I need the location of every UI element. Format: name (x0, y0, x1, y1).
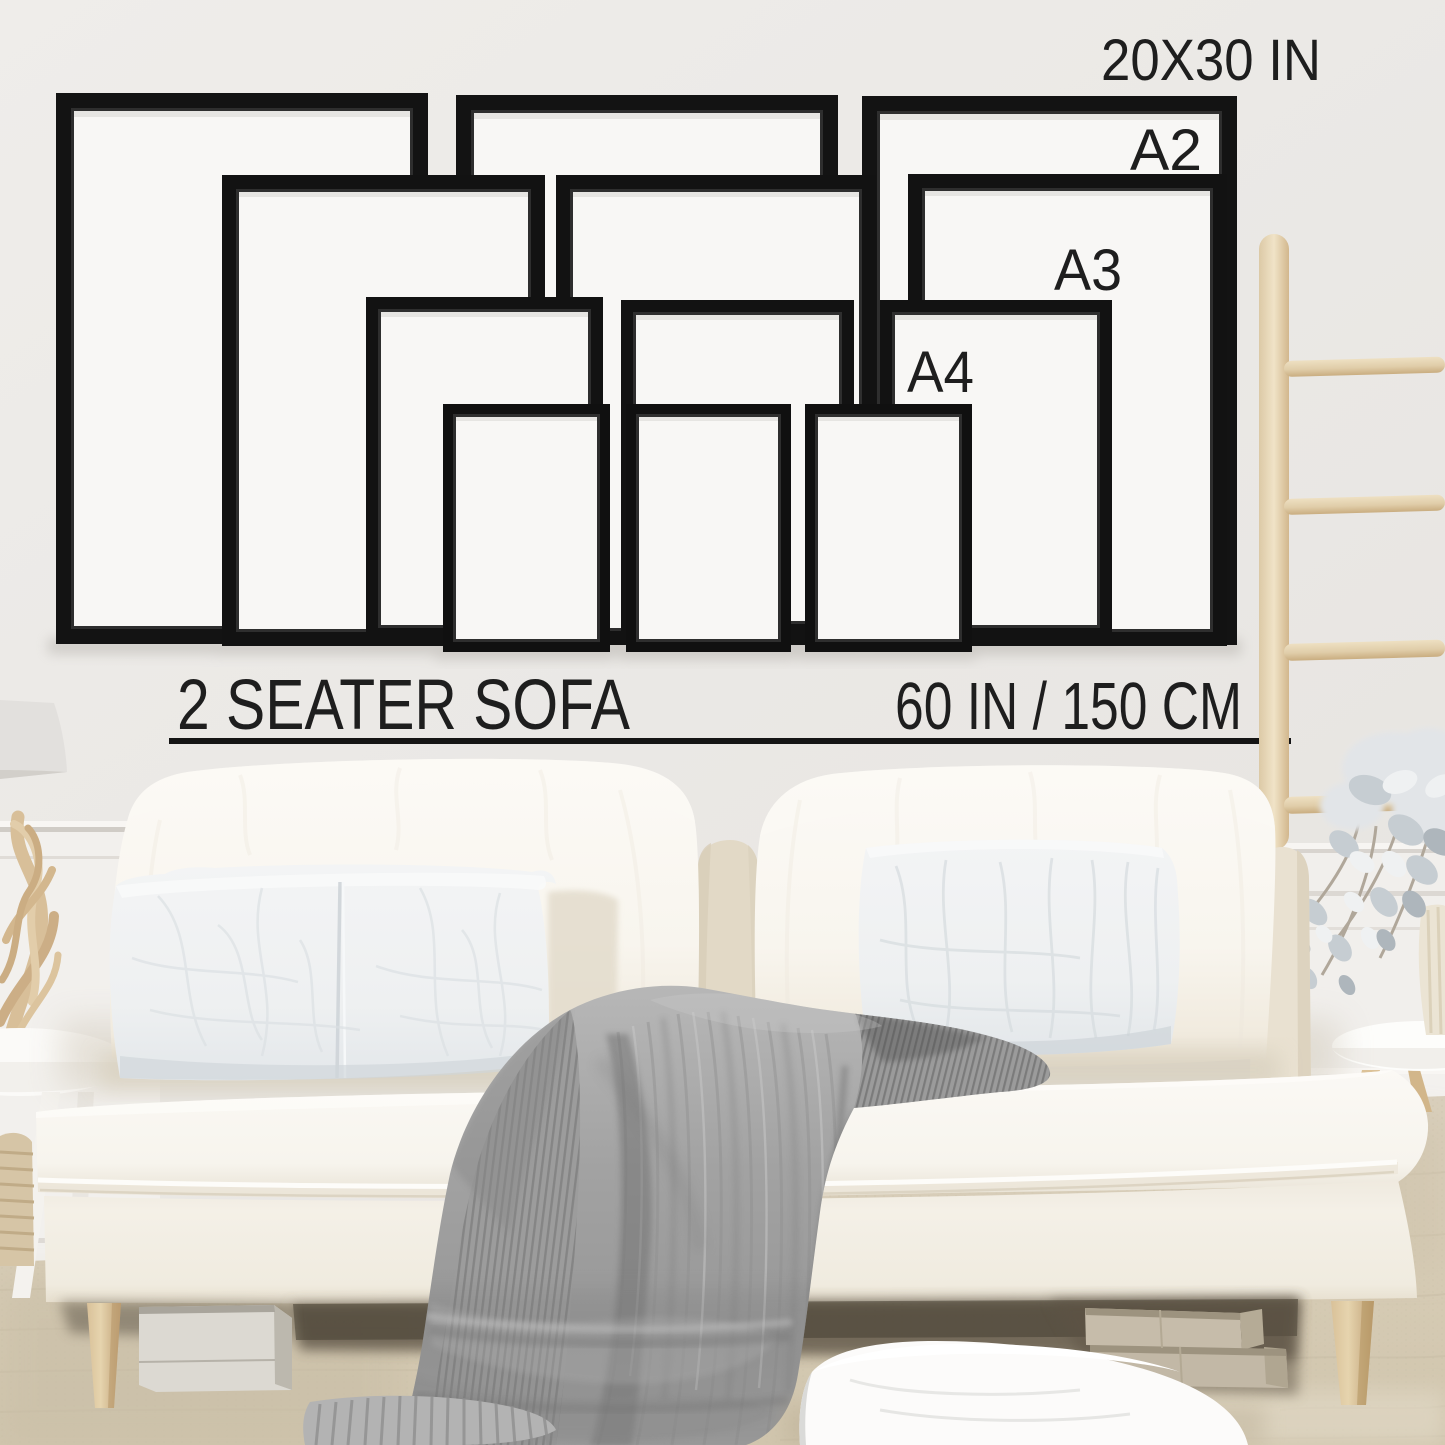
svg-text:2 SEATER SOFA: 2 SEATER SOFA (177, 666, 631, 745)
svg-text:A4: A4 (907, 340, 974, 405)
svg-text:60 IN / 150 CM: 60 IN / 150 CM (895, 669, 1242, 744)
svg-text:20X30 IN: 20X30 IN (1101, 28, 1321, 93)
svg-text:A3: A3 (1054, 238, 1122, 303)
svg-text:A2: A2 (1130, 118, 1202, 183)
